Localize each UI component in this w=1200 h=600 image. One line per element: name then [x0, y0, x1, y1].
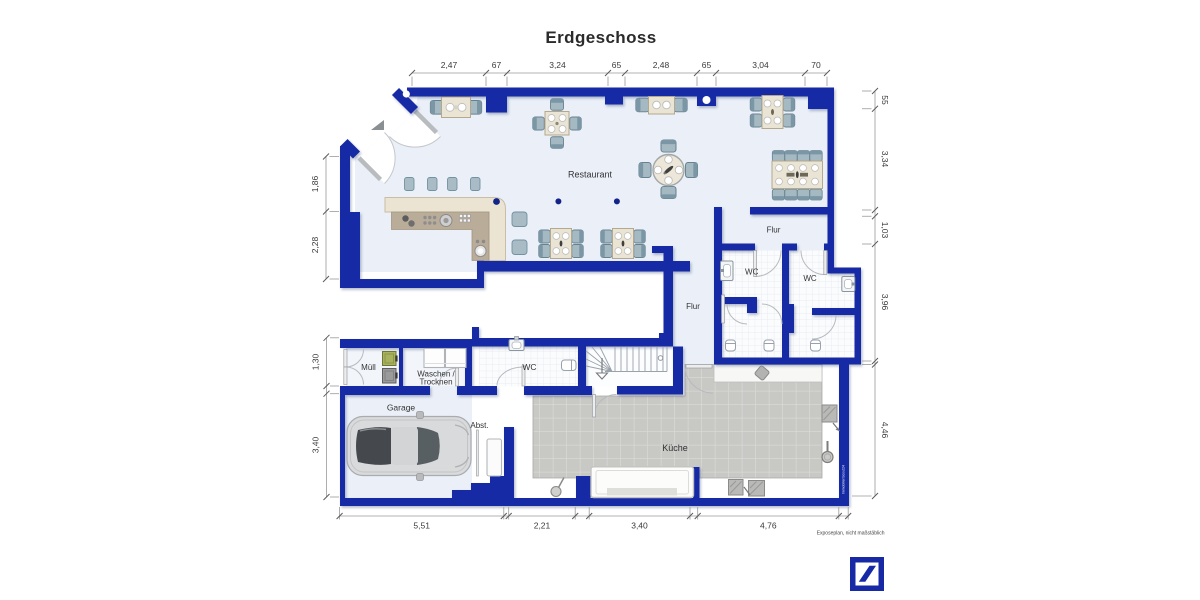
svg-text:3,40: 3,40: [311, 436, 321, 453]
svg-text:Restaurant: Restaurant: [568, 170, 613, 180]
svg-text:3,04: 3,04: [752, 60, 769, 70]
svg-text:Flur: Flur: [686, 302, 700, 311]
svg-text:4,76: 4,76: [760, 521, 777, 531]
svg-text:3,24: 3,24: [549, 60, 566, 70]
svg-text:Erdgeschoss: Erdgeschoss: [545, 28, 656, 47]
svg-text:2,47: 2,47: [441, 60, 458, 70]
svg-text:67: 67: [492, 60, 502, 70]
svg-text:ImmobilienScout24: ImmobilienScout24: [842, 465, 846, 494]
svg-text:1,86: 1,86: [310, 175, 320, 192]
svg-text:Küche: Küche: [662, 443, 688, 453]
svg-text:2,21: 2,21: [534, 521, 551, 531]
svg-text:Exposeplan, nicht maßstäblich: Exposeplan, nicht maßstäblich: [817, 531, 885, 537]
svg-text:WC: WC: [803, 274, 817, 283]
svg-text:WC: WC: [745, 268, 759, 277]
svg-text:WC: WC: [522, 362, 536, 372]
svg-text:Flur: Flur: [767, 226, 781, 235]
svg-text:1,30: 1,30: [311, 353, 321, 370]
svg-text:2,28: 2,28: [310, 236, 320, 253]
svg-text:Müll: Müll: [361, 363, 376, 372]
svg-text:Trocknen: Trocknen: [419, 378, 452, 387]
svg-text:70: 70: [811, 60, 821, 70]
svg-text:65: 65: [702, 60, 712, 70]
svg-text:Abst.: Abst.: [470, 421, 488, 430]
svg-text:3,96: 3,96: [880, 294, 890, 311]
svg-text:Garage: Garage: [387, 403, 416, 413]
svg-text:1,03: 1,03: [880, 222, 890, 239]
svg-text:3,40: 3,40: [631, 521, 648, 531]
svg-text:3,34: 3,34: [880, 151, 890, 168]
svg-text:55: 55: [880, 95, 890, 105]
svg-text:2,48: 2,48: [653, 60, 670, 70]
svg-text:65: 65: [612, 60, 622, 70]
svg-text:4,46: 4,46: [880, 422, 890, 439]
svg-text:5,51: 5,51: [413, 521, 430, 531]
